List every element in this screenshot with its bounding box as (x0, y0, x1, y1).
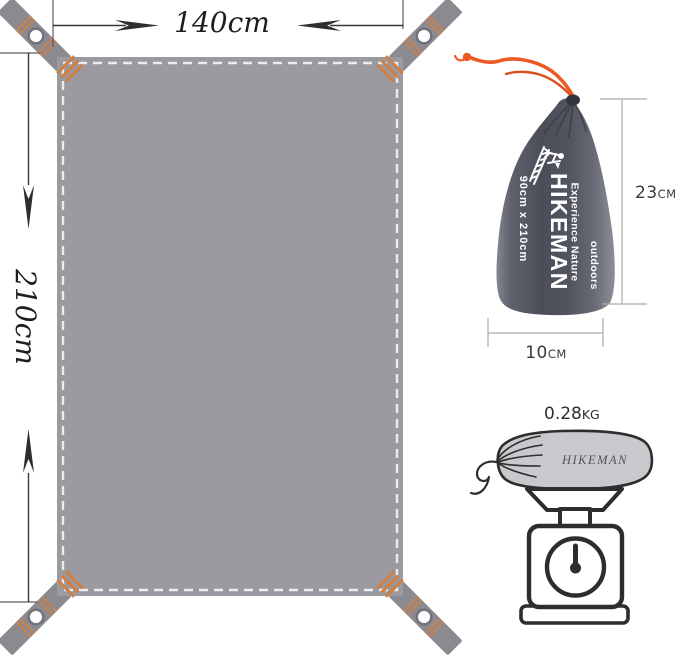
bag-width-label: 10CM (488, 343, 604, 363)
sack-brand-label: HIKEMAN (559, 453, 631, 468)
bag-height-unit: CM (658, 187, 677, 201)
arrow-down-icon (23, 185, 34, 229)
tarp-body (57, 56, 403, 596)
product-dimension-diagram: 140cm 210cm 23CM 10CM 0.28KG HIKEMAN Exp… (0, 0, 679, 656)
weight-value: 0.28 (544, 404, 582, 424)
bag-height-value: 23 (635, 183, 658, 203)
weight-label: 0.28KG (544, 404, 600, 424)
diagram-artwork (0, 0, 679, 656)
bag-width-unit: CM (548, 347, 567, 361)
tarp-height-label: 210cm (10, 262, 42, 372)
bag-tagline-1: Experience Nature (569, 183, 581, 268)
drawstring-cord (469, 57, 573, 96)
tarp-width-label: 140cm (170, 6, 274, 39)
bag-tagline-2: outdoors (588, 241, 600, 289)
weight-unit: KG (582, 407, 600, 422)
bag-width-value: 10 (525, 343, 548, 363)
sack-cord-curl (471, 462, 496, 494)
scale-tray (527, 489, 622, 510)
bag-height-label: 23CM (635, 183, 677, 203)
hiker-logo-icon (528, 141, 566, 187)
bag-cinch-knot (566, 95, 580, 106)
arrow-up-icon (23, 429, 34, 473)
